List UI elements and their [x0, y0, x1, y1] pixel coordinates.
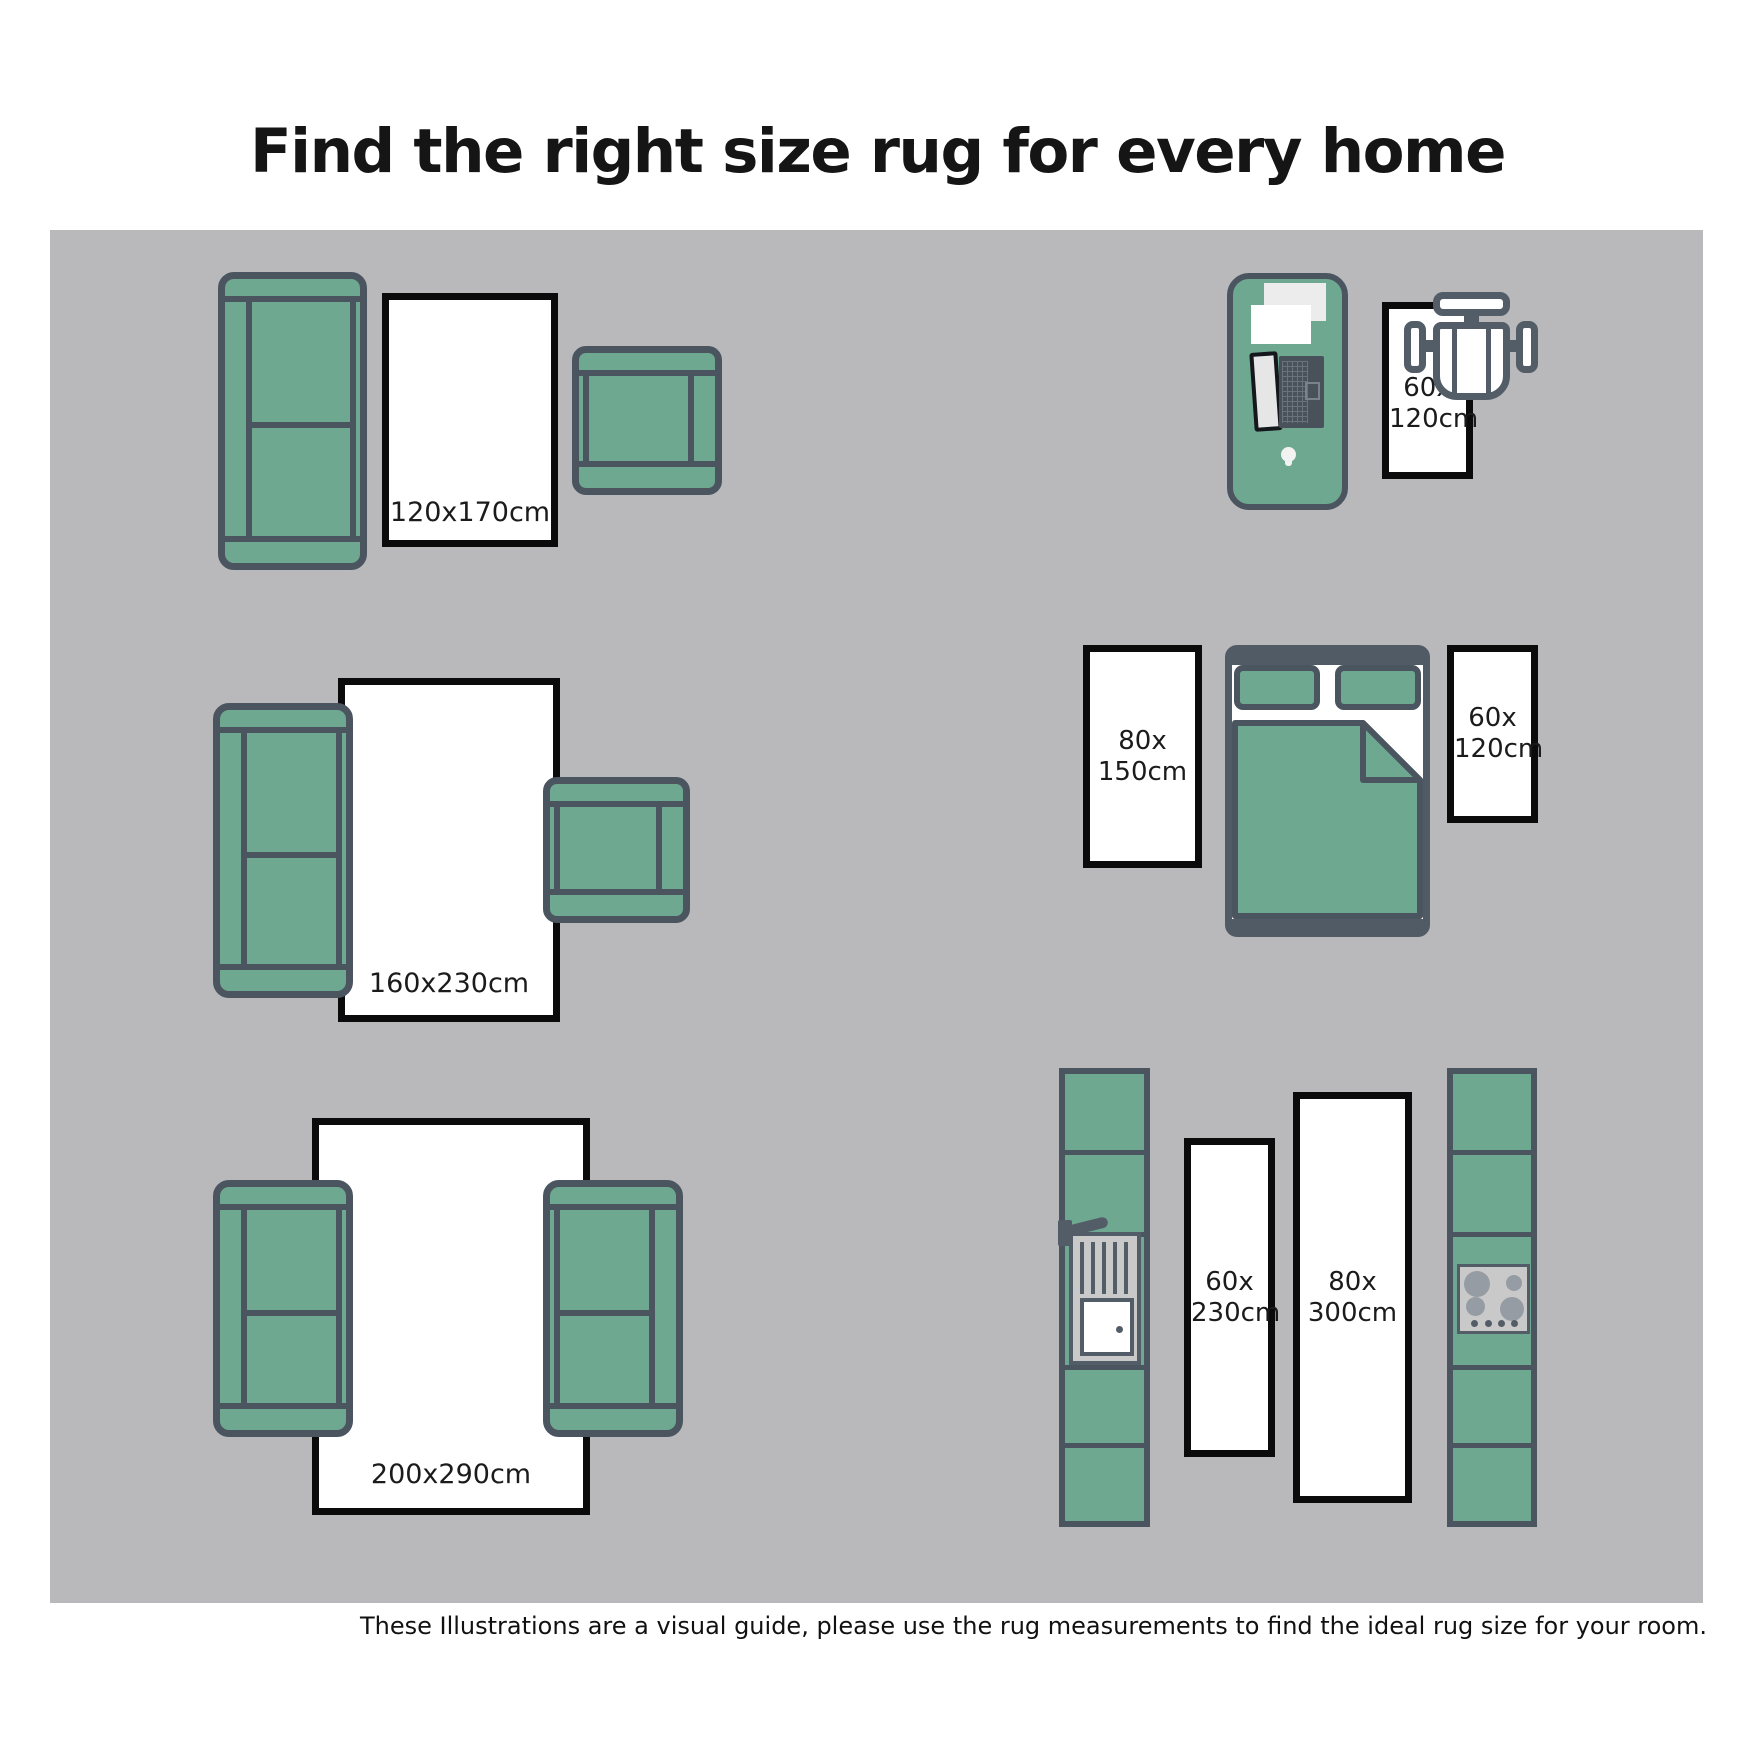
cooktop-burner [1464, 1271, 1490, 1297]
bed-footboard [1232, 919, 1423, 930]
counter-divider [1453, 1365, 1531, 1370]
rug-60x120-bedroom: 60x 120cm [1447, 645, 1538, 823]
rug-80x150: 80x 150cm [1083, 645, 1202, 868]
armchair-armrest-line [550, 889, 683, 895]
laptop-touchpad [1305, 382, 1320, 400]
computer-mouse-icon [1281, 447, 1296, 462]
duvet-icon [1232, 720, 1423, 919]
rug-size-label: 60x 120cm [1454, 703, 1531, 765]
sofa-backrest-line [649, 1204, 655, 1409]
bed-headboard [1232, 652, 1423, 665]
rug-size-label: 80x 150cm [1090, 725, 1195, 787]
sofa-front-line [336, 1204, 342, 1409]
chair-seat [1433, 322, 1510, 400]
cooktop-icon [1457, 1264, 1530, 1334]
sink-icon [1069, 1232, 1141, 1365]
sofa-icon [543, 1180, 683, 1437]
counter-divider [1065, 1150, 1144, 1155]
page-title: Find the right size rug for every home [0, 116, 1755, 187]
cooktop-knob [1471, 1320, 1478, 1327]
sink-drainboard [1080, 1242, 1130, 1294]
armchair-backrest-line [656, 801, 662, 895]
runner-60x230: 60x 230cm [1184, 1138, 1275, 1457]
rug-120x170: 120x170cm [382, 293, 558, 547]
armchair-armrest-line [579, 370, 715, 376]
sofa-seat-divider [241, 1310, 342, 1316]
sofa-backrest-line [246, 296, 252, 542]
sofa-front-line [554, 1204, 560, 1409]
armchair-armrest-line [550, 801, 683, 807]
sofa-armrest-line [550, 1204, 676, 1210]
sofa-armrest-line [220, 727, 346, 733]
sofa-armrest-line [220, 1403, 346, 1409]
chair-seat-line [1452, 329, 1457, 393]
sofa-front-line [336, 727, 342, 970]
counter-divider [1453, 1232, 1531, 1237]
infographic-canvas: Find the right size rug for every home 1… [0, 0, 1755, 1755]
chair-armrest [1404, 321, 1426, 373]
paper-sheet-icon [1251, 305, 1311, 344]
armchair-armrest-line [579, 461, 715, 467]
sofa-armrest-line [550, 1403, 676, 1409]
laptop-keyboard-icon [1279, 356, 1324, 428]
laptop-screen-icon [1249, 351, 1282, 432]
sofa-icon [218, 272, 367, 570]
sink-drain [1116, 1326, 1123, 1333]
sofa-seat-divider [246, 422, 356, 428]
cooktop-knob [1511, 1320, 1518, 1327]
kitchen-counter-icon [1447, 1068, 1537, 1527]
cooktop-burner [1466, 1297, 1485, 1316]
cooktop-burner [1506, 1275, 1522, 1291]
counter-divider [1065, 1443, 1144, 1448]
armchair-backrest-line [688, 370, 694, 467]
chair-seat-line [1486, 329, 1491, 393]
sofa-backrest-line [241, 1204, 247, 1409]
sofa-seat-divider [554, 1310, 655, 1316]
counter-divider [1065, 1365, 1144, 1370]
pillow-icon [1335, 665, 1421, 710]
runner-80x300: 80x 300cm [1293, 1092, 1412, 1503]
chair-armrest [1516, 321, 1538, 373]
rug-160x230: 160x230cm [338, 678, 560, 1022]
disclaimer-text: These Illustrations are a visual guide, … [360, 1612, 1707, 1640]
rug-size-label: 120x170cm [389, 497, 551, 528]
armchair-icon [543, 777, 690, 923]
sofa-front-line [350, 296, 356, 542]
rug-size-label: 160x230cm [345, 968, 553, 999]
cooktop-burner [1500, 1297, 1524, 1321]
armchair-front-line [583, 370, 589, 467]
sink-basin [1080, 1298, 1134, 1356]
sofa-armrest-line [220, 1204, 346, 1210]
pillow-icon [1234, 665, 1320, 710]
sofa-backrest-line [241, 727, 247, 970]
armchair-icon [572, 346, 722, 495]
rug-size-label: 60x 230cm [1191, 1266, 1268, 1328]
sofa-icon [213, 703, 353, 998]
cooktop-knob [1485, 1320, 1492, 1327]
counter-divider [1453, 1443, 1531, 1448]
rug-size-label: 200x290cm [319, 1459, 583, 1490]
kitchen-counter-icon [1059, 1068, 1150, 1527]
sofa-armrest-line [220, 964, 346, 970]
sofa-seat-divider [241, 852, 342, 858]
cooktop-knob [1498, 1320, 1505, 1327]
counter-divider [1453, 1150, 1531, 1155]
sofa-icon [213, 1180, 353, 1437]
rug-size-label: 80x 300cm [1300, 1266, 1405, 1328]
chair-backrest [1433, 292, 1510, 316]
armchair-front-line [554, 801, 560, 895]
